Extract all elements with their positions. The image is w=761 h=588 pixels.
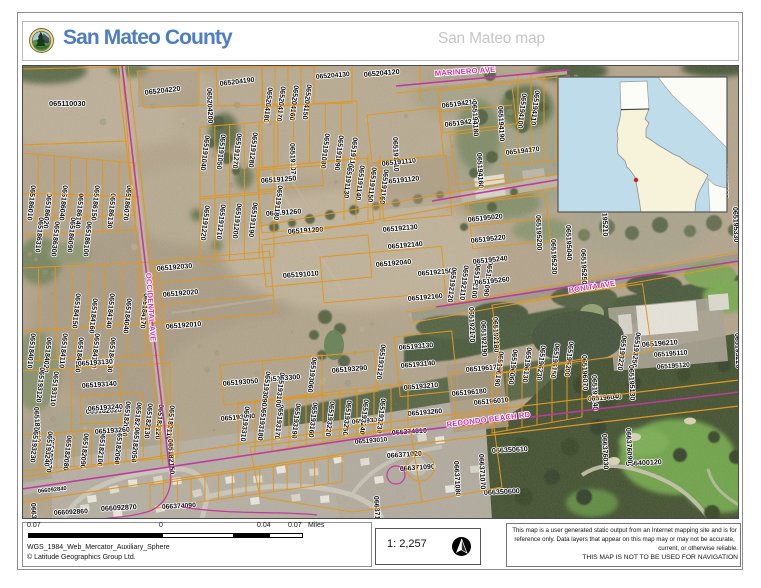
svg-text:065192190: 065192190 <box>479 321 488 357</box>
svg-text:066092870: 066092870 <box>101 502 137 513</box>
svg-text:065110030: 065110030 <box>49 99 86 108</box>
svg-text:065195330: 065195330 <box>731 207 739 243</box>
svg-text:066350600: 066350600 <box>484 486 520 497</box>
svg-text:065195230: 065195230 <box>549 239 558 275</box>
svg-text:065192180: 065192180 <box>491 317 500 353</box>
svg-text:065204200: 065204200 <box>205 88 214 124</box>
svg-text:065195140: 065195140 <box>590 375 599 411</box>
svg-text:065195130: 065195130 <box>627 365 636 401</box>
svg-text:065195200: 065195200 <box>534 215 543 251</box>
svg-text:066371030: 066371030 <box>29 503 39 519</box>
svg-text:066371040: 066371040 <box>372 496 382 519</box>
svg-text:065191070: 065191070 <box>288 143 297 179</box>
svg-text:065195040: 065195040 <box>564 225 573 261</box>
